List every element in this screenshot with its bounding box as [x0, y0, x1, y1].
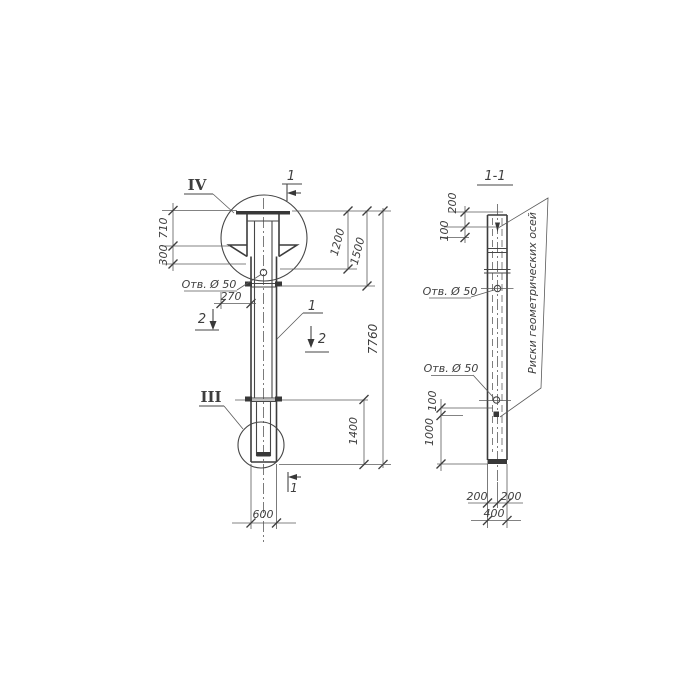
section-title: 1-1 — [484, 169, 505, 184]
dim-7760: 7760 — [366, 323, 380, 354]
left-barb — [229, 245, 247, 257]
dim-1000: 1000 — [423, 418, 436, 446]
axis-mark-lower — [494, 412, 500, 418]
lower-joint-mark-right — [275, 397, 282, 402]
dim-100-upper: 100 — [438, 221, 451, 242]
dim-200-bottom-right: 200 — [501, 490, 522, 503]
hole-note-leader — [237, 275, 261, 291]
lower-joint-mark-left — [245, 397, 252, 402]
detail-circle-IV — [221, 195, 307, 281]
detail-label-III: III — [200, 388, 221, 406]
dim-1200: 1200 — [328, 227, 348, 257]
hole-note-upper: Отв. Ø 50 — [423, 285, 478, 298]
dim-200-top: 200 — [446, 193, 459, 214]
part-callout-label: 1 — [308, 299, 316, 314]
dim-1500: 1500 — [348, 236, 368, 266]
section-mark-1-top-arrowhead — [287, 190, 296, 196]
dim-300: 300 — [157, 245, 170, 266]
core-bottom-plug — [257, 452, 271, 457]
pile-cap-plate — [236, 211, 290, 215]
dim-100-lower: 100 — [426, 391, 439, 412]
hole-lower-section — [493, 397, 499, 403]
section-mark-1-bottom-label: 1 — [290, 481, 298, 495]
technical-drawing: IV III 1 1 2 2 1 Отв. Ø 50 — [0, 0, 700, 700]
right-barb — [279, 245, 297, 257]
section-mark-2-right-label: 2 — [318, 332, 326, 347]
dim-1400: 1400 — [347, 417, 360, 445]
section-mark-2-left-label: 2 — [198, 312, 206, 327]
section-mark-1-bottom-arrowhead — [288, 474, 297, 480]
dim-600: 600 — [253, 508, 274, 521]
part-callout-leader — [277, 313, 303, 339]
dim-200-bottom-left: 200 — [467, 490, 488, 503]
detail-label-III-leader — [224, 406, 243, 429]
section-mark-2-left-arrowhead — [210, 321, 217, 330]
drawing-sheet: IV III 1 1 2 2 1 Отв. Ø 50 — [0, 0, 700, 700]
section-mark-2-right-arrowhead — [308, 339, 315, 348]
left-view-elevation: IV III 1 1 2 2 1 Отв. Ø 50 — [157, 169, 391, 542]
axes-note: Риски геометрических осей — [526, 212, 539, 374]
hole-note-lower-leader — [473, 375, 494, 398]
detail-label-IV: IV — [188, 176, 207, 194]
right-view-section-1-1: 1-1 200 100 — [423, 169, 548, 528]
dim-710: 710 — [157, 218, 170, 239]
hole-note-lower: Отв. Ø 50 — [424, 362, 479, 375]
section-bottom-plug — [488, 459, 508, 464]
section-mark-1-top-label: 1 — [287, 169, 295, 184]
dim-400: 400 — [484, 507, 505, 520]
